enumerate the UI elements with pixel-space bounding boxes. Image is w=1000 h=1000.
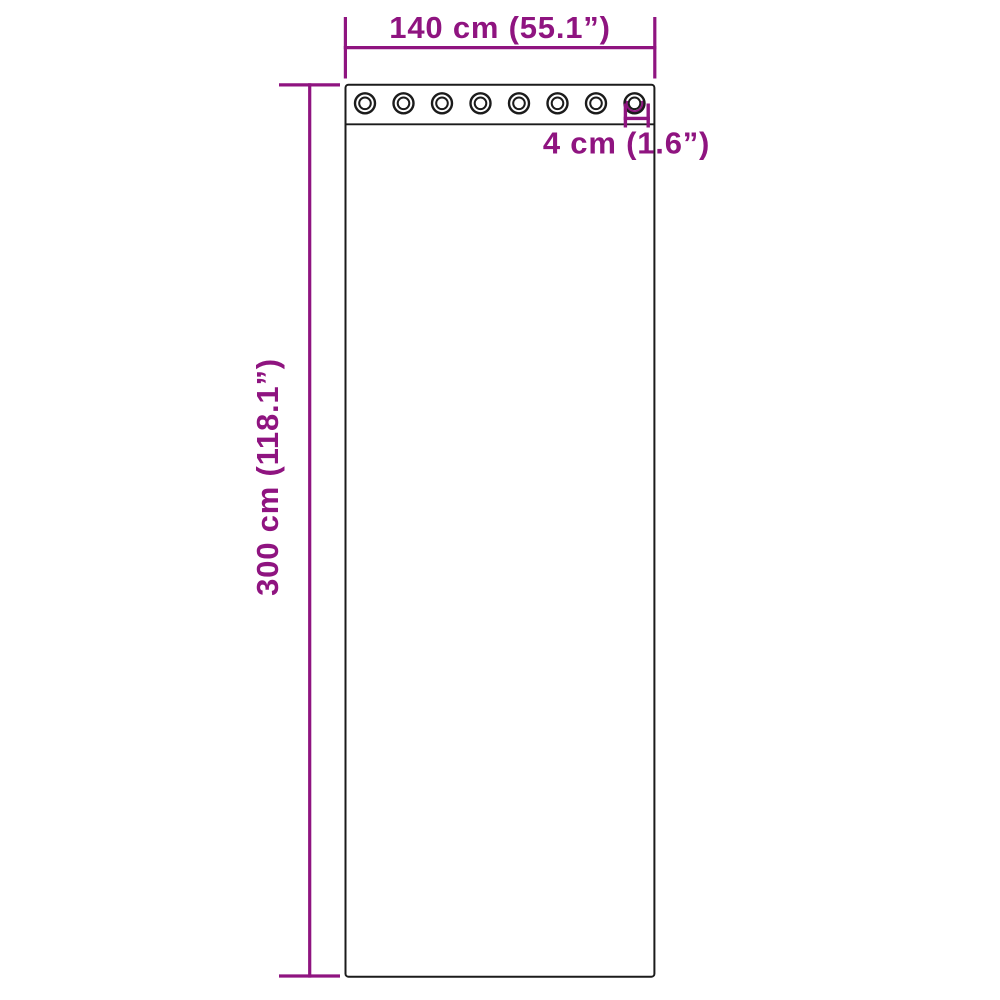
svg-text:300 cm (118.1”): 300 cm (118.1”) — [250, 358, 285, 596]
svg-text:4 cm (1.6”): 4 cm (1.6”) — [543, 126, 710, 161]
svg-text:140 cm (55.1”): 140 cm (55.1”) — [389, 10, 610, 45]
